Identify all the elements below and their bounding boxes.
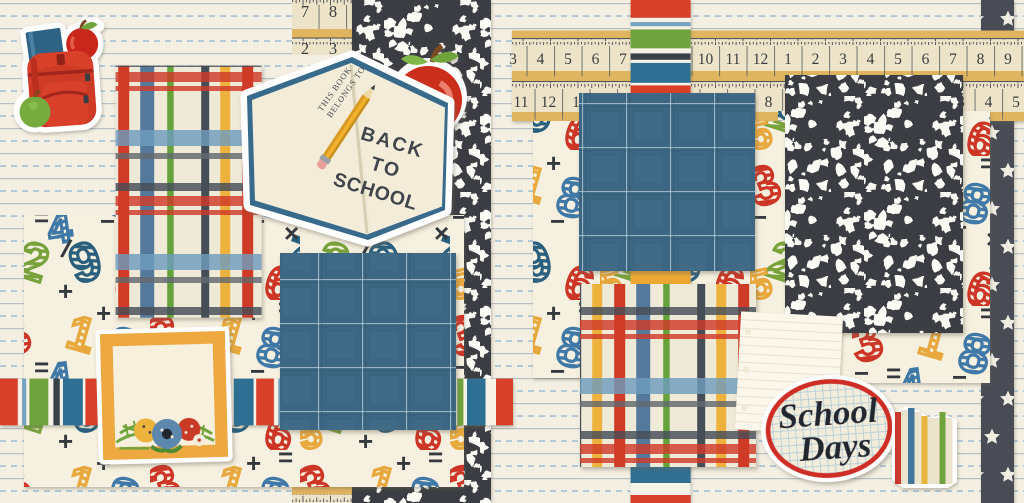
svg-text:6: 6 bbox=[592, 51, 600, 68]
svg-text:Days: Days bbox=[797, 425, 872, 469]
svg-text:1: 1 bbox=[572, 94, 580, 111]
svg-text:12: 12 bbox=[541, 94, 557, 111]
svg-text:3: 3 bbox=[509, 51, 517, 68]
svg-text:5: 5 bbox=[894, 51, 902, 68]
svg-text:3: 3 bbox=[329, 39, 337, 58]
svg-text:4: 4 bbox=[867, 51, 875, 68]
svg-text:4: 4 bbox=[537, 51, 545, 68]
svg-text:9: 9 bbox=[1004, 51, 1012, 68]
svg-text:6: 6 bbox=[922, 51, 930, 68]
svg-text:8: 8 bbox=[977, 51, 985, 68]
svg-text:5: 5 bbox=[1012, 94, 1020, 111]
svg-text:2: 2 bbox=[301, 39, 309, 58]
svg-text:8: 8 bbox=[329, 2, 337, 21]
svg-text:7: 7 bbox=[619, 51, 627, 68]
svg-text:2: 2 bbox=[812, 51, 820, 68]
svg-text:12: 12 bbox=[753, 51, 769, 68]
svg-text:4: 4 bbox=[985, 94, 993, 111]
svg-text:11: 11 bbox=[726, 51, 741, 68]
svg-text:11: 11 bbox=[514, 94, 529, 111]
svg-text:7: 7 bbox=[301, 2, 309, 21]
svg-text:5: 5 bbox=[564, 51, 572, 68]
svg-text:10: 10 bbox=[698, 51, 714, 68]
svg-text:3: 3 bbox=[839, 51, 847, 68]
svg-text:1: 1 bbox=[784, 51, 792, 68]
svg-text:8: 8 bbox=[765, 94, 773, 111]
svg-text:7: 7 bbox=[949, 51, 957, 68]
